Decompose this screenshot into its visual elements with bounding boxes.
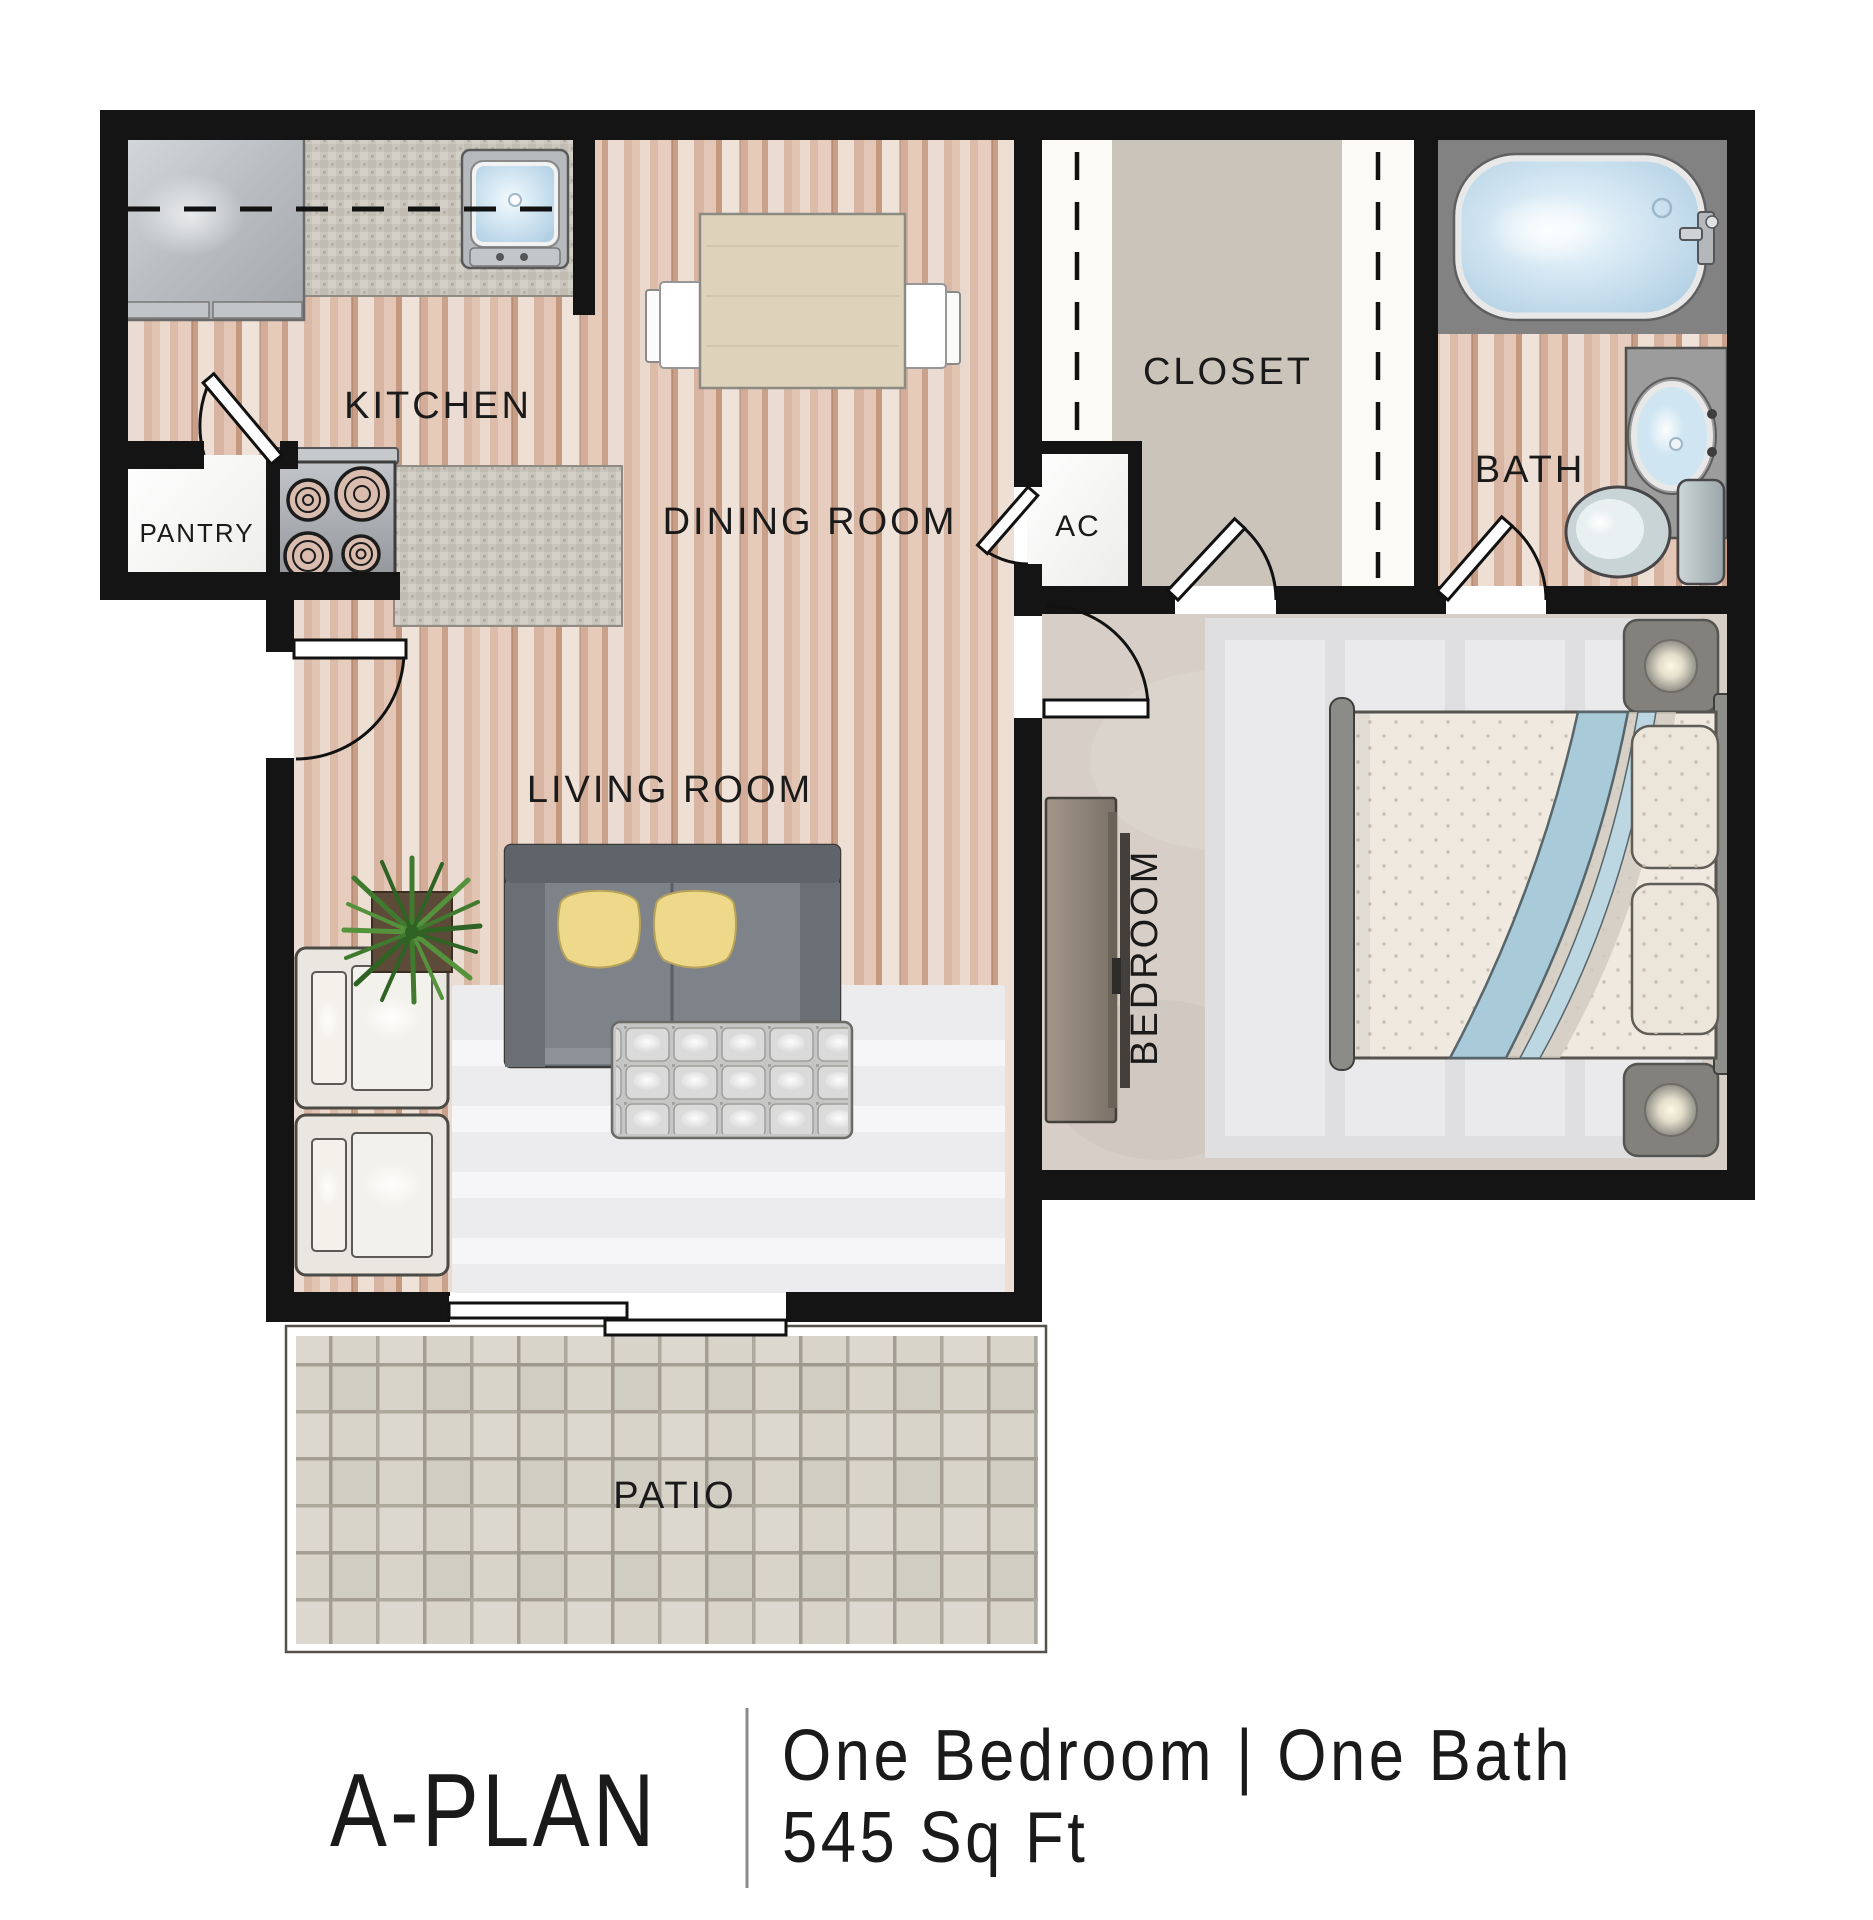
floor-plan-page: PATIO xyxy=(0,0,1873,1920)
plan-name: A-PLAN xyxy=(330,1753,658,1869)
wall-pantry-right xyxy=(266,455,280,575)
rug-panel xyxy=(1225,640,1325,1136)
bath-label: BATH xyxy=(1475,449,1586,491)
wall-under-pantry xyxy=(100,572,400,600)
rug-stripe xyxy=(452,1172,1005,1198)
kitchen-label: KITCHEN xyxy=(344,385,532,427)
closet-rod-left xyxy=(1042,140,1112,441)
pantry-label: PANTRY xyxy=(139,518,254,548)
wall-main-vertical-top xyxy=(1014,140,1042,487)
armchair xyxy=(296,1115,448,1275)
living-room-label: LIVING ROOM xyxy=(527,769,813,811)
wall-pantry-top xyxy=(100,441,204,469)
fridge-sheen xyxy=(135,173,245,257)
wall-living-bottom-left xyxy=(266,1292,450,1322)
rug-stripe xyxy=(452,1238,1005,1264)
plan-type: One Bedroom | One Bath xyxy=(782,1716,1573,1796)
caption: A-PLAN One Bedroom | One Bath 545 Sq Ft xyxy=(330,1708,1573,1888)
fridge-handle xyxy=(213,302,302,318)
wall-kitchen-stub xyxy=(573,138,595,315)
granite-counter-lower xyxy=(394,466,622,626)
wall-bedroom-bottom xyxy=(1014,1170,1755,1200)
dining-chair xyxy=(646,282,704,368)
wall-closet-bath-divider xyxy=(1414,140,1438,614)
nightstand-lamp xyxy=(1624,1064,1718,1156)
wall-bedroom-top-a xyxy=(1014,586,1175,614)
toilet xyxy=(1566,480,1724,584)
wall-bedroom-top-c xyxy=(1546,586,1727,614)
ac-label: AC xyxy=(1055,510,1101,543)
bathtub xyxy=(1438,140,1727,334)
wall-right xyxy=(1727,110,1755,1200)
fridge-handle xyxy=(121,302,209,318)
dining-chair xyxy=(902,284,960,368)
wall-main-vertical-low xyxy=(1014,718,1042,1170)
wall-ac-top xyxy=(1014,441,1142,454)
wall-top xyxy=(100,110,1755,140)
wall-living-left-upper xyxy=(266,598,294,652)
bedroom-label: BEDROOM xyxy=(1124,849,1166,1066)
wall-left-kitchen xyxy=(100,110,128,600)
dining-table xyxy=(700,214,905,388)
dining-room-label: DINING ROOM xyxy=(663,501,958,543)
floor-plan-canvas: PATIO xyxy=(0,0,1873,1920)
wall-living-bottom-right xyxy=(786,1292,1042,1322)
patio-label: PATIO xyxy=(613,1475,736,1517)
wall-ac-right xyxy=(1128,441,1142,586)
patio: PATIO xyxy=(286,1326,1046,1652)
closet-label: CLOSET xyxy=(1143,351,1313,393)
wall-living-left-lower xyxy=(266,758,294,1322)
ottoman xyxy=(612,1022,852,1138)
bed xyxy=(1330,694,1731,1074)
nightstand-lamp xyxy=(1624,620,1718,712)
throw-pillow xyxy=(654,891,736,968)
plan-area: 545 Sq Ft xyxy=(782,1798,1088,1878)
throw-pillow xyxy=(558,891,640,968)
